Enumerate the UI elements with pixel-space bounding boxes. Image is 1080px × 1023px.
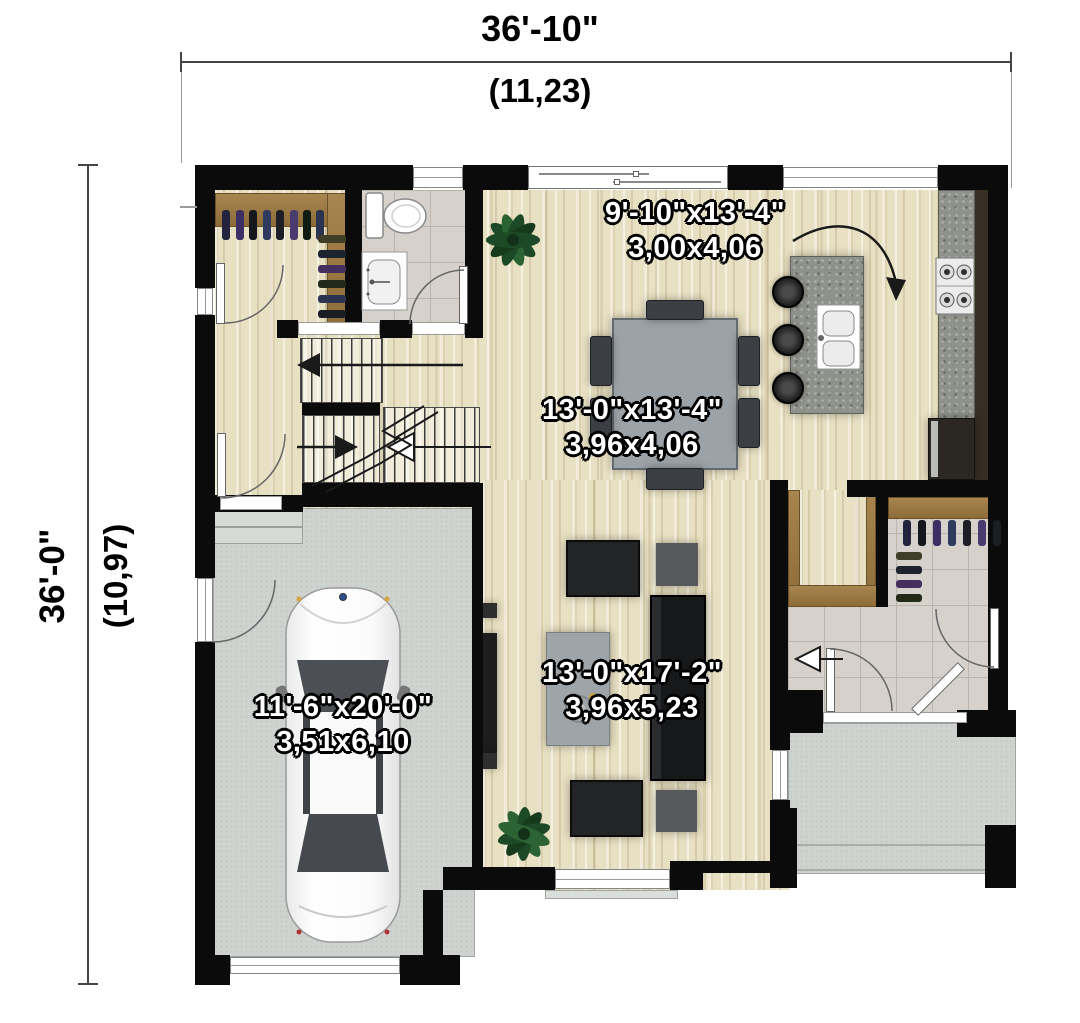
wall-segment: [345, 190, 362, 330]
wall-segment: [277, 320, 298, 338]
wall-segment: [770, 733, 790, 750]
patio-door-handle: [614, 179, 620, 185]
living-room-window: [555, 869, 670, 889]
hall-door-opening: [220, 496, 282, 510]
wall-segment: [876, 490, 888, 607]
side-table: [656, 543, 698, 586]
pantry-wood-floor: [800, 490, 866, 585]
bathroom-door-leaf: [459, 266, 468, 324]
wall-segment: [195, 165, 215, 288]
garage-door: [230, 957, 400, 974]
left-dimension-imperial: 36'-0": [33, 476, 71, 676]
patio-door-handle: [633, 171, 639, 177]
dining-chair: [646, 300, 704, 320]
room-label-kitchen-metric: 3,00x4,06: [555, 231, 835, 266]
top-dim-tick-left: [180, 52, 182, 72]
witness-line: [1011, 63, 1012, 188]
closet-window: [197, 288, 213, 315]
garage-step: [213, 510, 303, 527]
stair-opening: [298, 322, 380, 335]
room-label-garage-metric: 3,51x6,10: [210, 725, 476, 760]
bar-stool: [772, 372, 804, 404]
pantry-shelf-bottom: [788, 585, 888, 607]
wall-segment: [770, 690, 823, 733]
witness-line: [180, 206, 197, 208]
armchair: [566, 540, 640, 597]
top-dimension-line: [181, 61, 1012, 63]
room-label-dining-imperial: 13'-0"x13'-4": [492, 393, 772, 428]
wall-segment: [670, 861, 703, 890]
patio-door-rail: [613, 181, 721, 183]
wall-segment: [728, 165, 783, 190]
bathroom-tile-floor: [358, 190, 470, 330]
closet-door-leaf: [216, 263, 225, 324]
stair-flight-lower-right: [383, 407, 480, 483]
wall-segment: [302, 483, 483, 507]
wall-segment: [195, 165, 413, 190]
porch-step-line: [796, 844, 988, 846]
room-label-living-imperial: 13'-0"x17'-2": [492, 656, 772, 691]
porch-pillar: [770, 808, 797, 888]
refrigerator: [928, 418, 975, 480]
top-dimension-metric: (11,23): [300, 72, 780, 110]
left-dim-tick-top: [78, 164, 98, 166]
room-label-dining: 13'-0"x13'-4" 3,96x4,06: [492, 393, 772, 463]
witness-line: [181, 63, 182, 163]
wall-segment: [302, 403, 380, 415]
window-sill: [545, 890, 678, 899]
bar-stool: [772, 324, 804, 356]
kitchen-window: [783, 167, 938, 188]
room-label-dining-metric: 3,96x4,06: [492, 428, 772, 463]
kitchen-counter: [938, 190, 975, 420]
garage-step: [213, 527, 303, 544]
wall-segment: [770, 480, 788, 712]
bar-stool: [772, 276, 804, 308]
room-label-garage: 11'-6"x20'-0" 3,51x6,10: [210, 690, 476, 760]
wall-segment: [443, 867, 555, 890]
dining-chair: [590, 336, 612, 386]
room-label-living-metric: 3,96x5,23: [492, 691, 772, 726]
tv-speaker: [483, 753, 497, 769]
wall-segment: [463, 165, 528, 190]
dining-chair: [738, 336, 760, 386]
room-label-living: 13'-0"x17'-2" 3,96x5,23: [492, 656, 772, 726]
top-dim-tick-right: [1010, 52, 1012, 72]
porch-step-line: [796, 869, 996, 871]
room-label-kitchen-imperial: 9'-10"x13'-4": [555, 196, 835, 231]
wall-segment: [400, 955, 460, 985]
room-label-kitchen: 9'-10"x13'-4" 3,00x4,06: [555, 196, 835, 266]
front-door-threshold: [823, 712, 967, 723]
tv-speaker: [483, 603, 497, 618]
bathroom-door-opening: [412, 322, 465, 335]
room-label-garage-imperial: 11'-6"x20'-0": [210, 690, 476, 725]
entry-door-leaf: [826, 648, 835, 712]
wall-segment: [195, 315, 215, 578]
porch-slab: [788, 723, 1016, 874]
top-dimension-imperial: 36'-10": [300, 8, 780, 50]
refrigerator-door-edge: [931, 421, 938, 477]
garage-side-door: [197, 578, 213, 642]
dining-chair: [646, 468, 704, 490]
wall-segment: [380, 320, 412, 338]
stair-flight-upper: [300, 338, 383, 403]
side-table: [656, 790, 697, 832]
armchair: [570, 780, 643, 837]
wall-segment: [423, 890, 443, 957]
entry-closet-door-leaf: [990, 608, 999, 669]
bathroom-window: [413, 167, 463, 188]
left-dim-tick-bottom: [78, 983, 98, 985]
floor-plan: 36'-10" (11,23) 36'-0" (10,97): [0, 0, 1080, 1023]
wall-segment: [847, 480, 988, 497]
wall-segment: [195, 955, 230, 985]
hall-door-leaf: [217, 433, 226, 497]
left-dimension-line: [87, 165, 89, 985]
porch-window: [772, 750, 788, 800]
patio-door: [528, 166, 728, 189]
left-dimension-metric: (10,97): [97, 476, 135, 676]
stair-flight-lower-left: [302, 415, 380, 483]
porch-pillar: [985, 825, 1016, 888]
wall-segment: [472, 490, 483, 867]
